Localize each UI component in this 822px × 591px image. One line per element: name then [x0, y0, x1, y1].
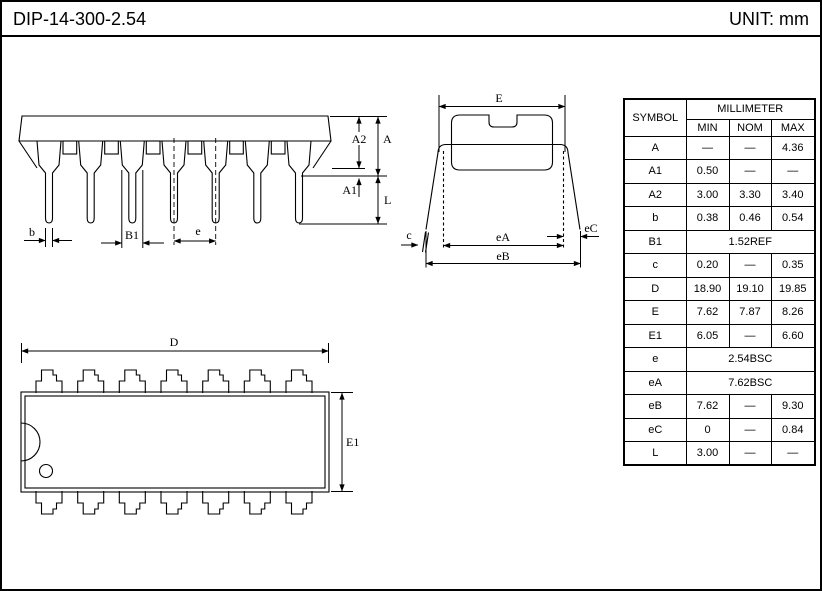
- dim-label-E: E: [495, 91, 502, 105]
- symbol-cell: c: [624, 254, 686, 278]
- symbol-cell: eA: [624, 371, 686, 395]
- value-cell: 6.60: [771, 324, 815, 348]
- package-body-top: [21, 392, 329, 492]
- column-header: MIN: [686, 119, 729, 136]
- value-cell: 0.50: [686, 160, 729, 184]
- value-cell: 0.38: [686, 207, 729, 231]
- value-cell: 3.00: [686, 183, 729, 207]
- value-cell: 0.54: [771, 207, 815, 231]
- value-cell: 1.52REF: [686, 230, 815, 254]
- symbol-header: SYMBOL: [624, 99, 686, 136]
- value-cell: 0.20: [686, 254, 729, 278]
- symbol-cell: A2: [624, 183, 686, 207]
- value-cell: 3.30: [729, 183, 771, 207]
- value-cell: 7.87: [729, 301, 771, 325]
- dim-label-b: b: [29, 225, 35, 239]
- dim-label-A: A: [383, 132, 392, 146]
- table-row: eA7.62BSC: [624, 371, 815, 395]
- table-row: D18.9019.1019.85: [624, 277, 815, 301]
- table-row: eC0—0.84: [624, 418, 815, 442]
- value-cell: 18.90: [686, 277, 729, 301]
- dim-label-A1: A1: [342, 183, 357, 197]
- value-cell: 7.62BSC: [686, 371, 815, 395]
- value-cell: —: [729, 160, 771, 184]
- value-cell: —: [771, 160, 815, 184]
- symbol-cell: b: [624, 207, 686, 231]
- symbol-cell: A1: [624, 160, 686, 184]
- value-cell: 3.00: [686, 442, 729, 466]
- dim-label-L: L: [384, 193, 391, 207]
- symbol-cell: A: [624, 136, 686, 160]
- column-header: MAX: [771, 119, 815, 136]
- package-body-side: [19, 116, 331, 141]
- value-cell: 7.62: [686, 395, 729, 419]
- value-cell: 0.46: [729, 207, 771, 231]
- dim-label-B1: B1: [125, 228, 139, 242]
- symbol-cell: E1: [624, 324, 686, 348]
- table-row: A——4.36: [624, 136, 815, 160]
- dim-label-E1: E1: [346, 435, 359, 449]
- value-cell: 2.54BSC: [686, 348, 815, 372]
- value-cell: 19.10: [729, 277, 771, 301]
- datasheet-page: DIP-14-300-2.54 UNIT: mm b: [0, 0, 822, 591]
- value-cell: —: [729, 395, 771, 419]
- symbol-cell: eB: [624, 395, 686, 419]
- table-row: A10.50——: [624, 160, 815, 184]
- value-cell: —: [729, 136, 771, 160]
- table-row: L3.00——: [624, 442, 815, 466]
- dim-label-eC: eC: [584, 221, 597, 235]
- table-row: A23.003.303.40: [624, 183, 815, 207]
- symbol-cell: e: [624, 348, 686, 372]
- dim-label-eB: eB: [496, 249, 509, 263]
- top-view-drawing: D E1: [21, 335, 359, 514]
- value-cell: 7.62: [686, 301, 729, 325]
- side-view-drawing: b B1 e A2 A A1: [19, 116, 392, 248]
- dim-label-A2: A2: [352, 132, 367, 146]
- symbol-cell: L: [624, 442, 686, 466]
- value-cell: —: [686, 136, 729, 160]
- symbol-cell: E: [624, 301, 686, 325]
- value-cell: —: [729, 324, 771, 348]
- value-cell: 19.85: [771, 277, 815, 301]
- dim-label-c: c: [406, 228, 411, 242]
- value-cell: 0.84: [771, 418, 815, 442]
- symbol-cell: D: [624, 277, 686, 301]
- value-cell: 0.35: [771, 254, 815, 278]
- spec-table-body: A——4.36A10.50——A23.003.303.40b0.380.460.…: [624, 136, 815, 465]
- table-row: E16.05—6.60: [624, 324, 815, 348]
- value-cell: 8.26: [771, 301, 815, 325]
- dimension-table: SYMBOL MILLIMETER MINNOMMAX A——4.36A10.5…: [623, 98, 816, 466]
- package-body-end: [452, 115, 553, 170]
- pin1-marker: [40, 465, 53, 478]
- value-cell: 3.40: [771, 183, 815, 207]
- end-view-drawing: E eA eB eC c: [401, 91, 599, 268]
- value-cell: 6.05: [686, 324, 729, 348]
- table-row: eB7.62—9.30: [624, 395, 815, 419]
- table-row: E7.627.878.26: [624, 301, 815, 325]
- table-row: b0.380.460.54: [624, 207, 815, 231]
- symbol-cell: B1: [624, 230, 686, 254]
- index-notch: [21, 423, 40, 461]
- symbol-cell: eC: [624, 418, 686, 442]
- table-row: e2.54BSC: [624, 348, 815, 372]
- millimeter-header: MILLIMETER: [686, 99, 815, 119]
- table-row: B11.52REF: [624, 230, 815, 254]
- column-header: NOM: [729, 119, 771, 136]
- dim-label-eA: eA: [496, 230, 510, 244]
- value-cell: 4.36: [771, 136, 815, 160]
- table-row: c0.20—0.35: [624, 254, 815, 278]
- value-cell: —: [729, 442, 771, 466]
- value-cell: —: [771, 442, 815, 466]
- value-cell: —: [729, 418, 771, 442]
- value-cell: 9.30: [771, 395, 815, 419]
- dim-label-D: D: [170, 335, 179, 349]
- dim-label-e: e: [195, 224, 200, 238]
- value-cell: —: [729, 254, 771, 278]
- value-cell: 0: [686, 418, 729, 442]
